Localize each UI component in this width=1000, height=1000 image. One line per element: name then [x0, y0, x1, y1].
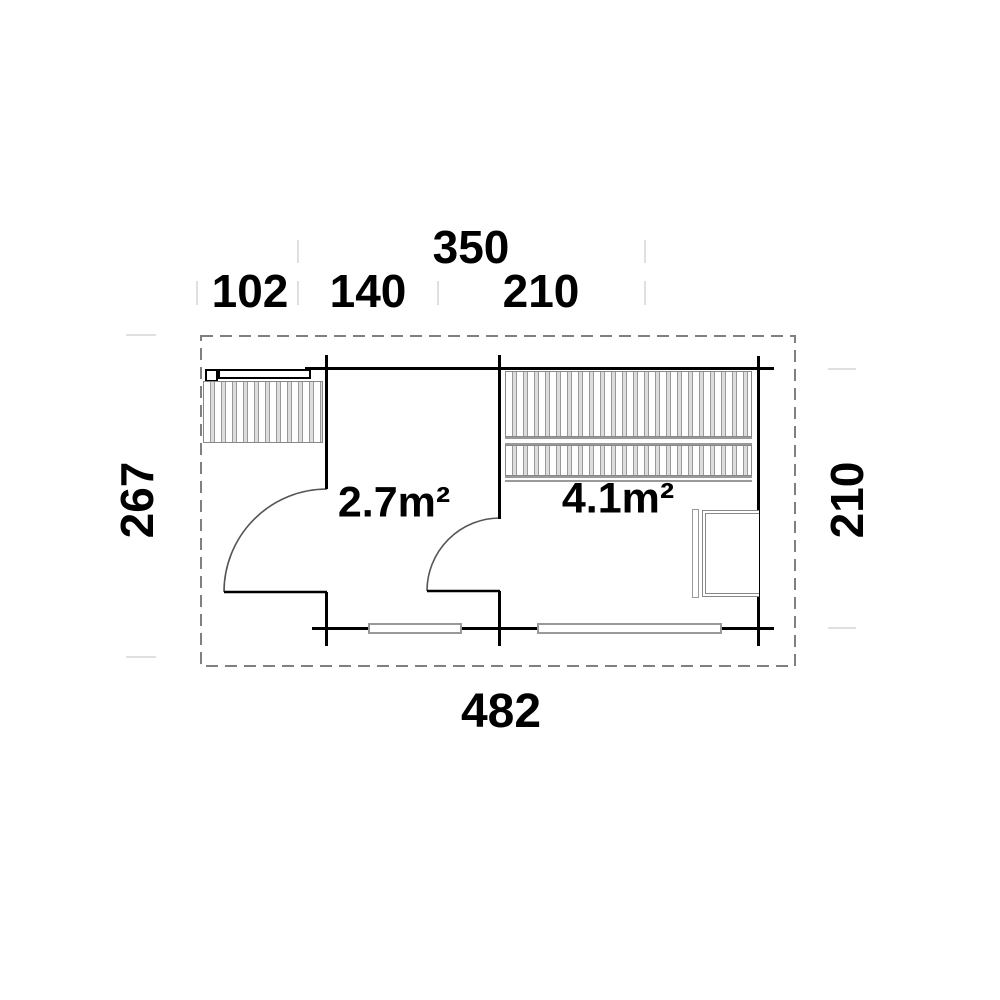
left-wall-upper: [325, 355, 328, 489]
dim-label-left-total: 267: [114, 462, 160, 539]
heater-guard-rail: [692, 509, 699, 598]
dim-label-segment-140: 140: [330, 268, 407, 314]
porch-beam: [218, 369, 311, 379]
dim-tick: [126, 656, 156, 658]
bottom-wall-segment: [722, 627, 774, 630]
top-wall: [305, 367, 774, 370]
dim-tick: [644, 281, 646, 305]
dim-tick: [644, 240, 646, 263]
door-swing-arc-1: [224, 489, 327, 592]
dim-tick: [437, 281, 439, 305]
dim-label-segment-210: 210: [503, 268, 580, 314]
sauna-bench-lower: [505, 445, 752, 476]
bottom-wall-segment: [312, 627, 368, 630]
dim-tick: [297, 240, 299, 263]
dim-label-segment-102: 102: [212, 268, 289, 314]
sauna-heater: [702, 510, 759, 597]
partition-wall-lower: [498, 591, 501, 646]
partition-wall-upper: [498, 355, 501, 519]
left-wall-lower: [325, 592, 328, 646]
dim-tick: [297, 281, 299, 305]
dim-tick: [196, 281, 198, 305]
dim-label-top-total: 350: [433, 224, 510, 270]
dim-label-right-total: 210: [824, 462, 870, 539]
window-room2: [537, 623, 722, 634]
door-swing-arc-2: [427, 518, 500, 591]
window-room1: [368, 623, 462, 634]
porch-deck-hatch: [203, 381, 323, 443]
room2-area-label: 4.1m²: [562, 478, 674, 521]
dim-tick: [126, 334, 156, 336]
dim-tick: [828, 627, 856, 629]
room1-area-label: 2.7m²: [338, 482, 450, 525]
dim-tick: [828, 368, 856, 370]
sauna-bench-upper: [505, 371, 752, 437]
right-wall: [757, 356, 760, 646]
sauna-bench-rail: [505, 437, 752, 445]
floor-plan-canvas: 350 102 140 210 482 267 210: [0, 0, 1000, 1000]
dim-label-bottom-total: 482: [461, 688, 541, 736]
